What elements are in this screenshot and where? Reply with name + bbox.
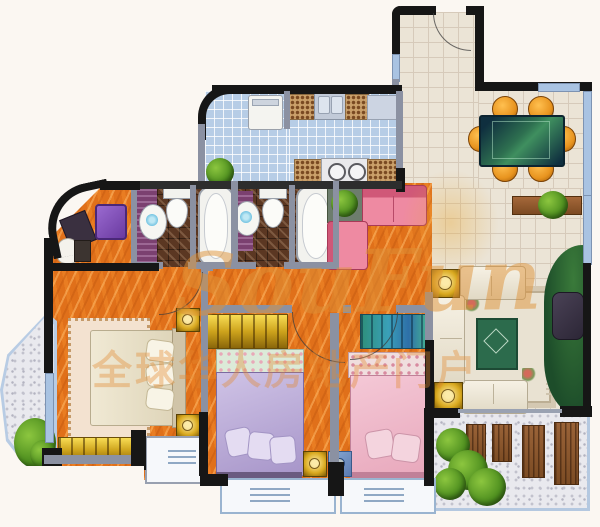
wall-entry-left: [392, 6, 400, 56]
bath2-bathtub-basin: [302, 193, 330, 259]
wall-master-right: [201, 267, 208, 415]
master-pillow-1: [145, 338, 176, 364]
rug-flower-top: [466, 298, 480, 312]
bath1-bathtub: [198, 186, 234, 266]
kitchen-counter-mosaic-a: [289, 94, 317, 120]
sofa-bottom-seatline: [493, 384, 494, 404]
dining-table-glass: [492, 121, 550, 159]
balcony-fern-3: [468, 468, 506, 506]
wall-entry-right: [475, 6, 484, 90]
bath2-sink-bowl: [240, 211, 252, 223]
wall-master-left: [44, 238, 53, 373]
sofa-left-seatline: [440, 338, 462, 339]
wall-master-bay-stub: [131, 430, 146, 470]
wall-laundry-left: [198, 124, 205, 185]
window-dining-right: [583, 91, 592, 197]
wall-bed3-right: [425, 292, 433, 342]
master-window-vent: [168, 448, 196, 464]
wall-bath-divider-1: [190, 185, 196, 265]
balcony-lounger-2: [492, 424, 512, 462]
balcony-door-track: [458, 409, 562, 413]
side-table-top-ring: [438, 276, 452, 290]
kitchen-counter-mosaic-b: [345, 94, 369, 120]
bath1-bathtub-basin: [204, 193, 228, 259]
wall-bath-divider-2: [231, 181, 238, 267]
kitchen-counter-right: [367, 95, 398, 120]
balcony-lounger-4: [554, 422, 579, 485]
bath1-sink-bowl: [146, 214, 158, 226]
stove-burner-right: [348, 163, 366, 181]
pink-sofa-horizontal-cushion: [393, 196, 394, 222]
bedroom2-pillow-3: [269, 435, 297, 465]
side-table-bottom-ring: [441, 389, 455, 403]
master-pillow-3: [145, 386, 175, 411]
bedroom2-nightstand-ring: [309, 458, 320, 469]
sofa-left: [431, 295, 465, 385]
wall-bed3-right-low: [425, 340, 434, 414]
window-entry-left: [392, 54, 400, 82]
window-dining-top: [538, 83, 580, 92]
balcony-fern-4: [434, 468, 466, 500]
sofa-top-seatline: [491, 276, 492, 296]
wall-bath-bottom-3: [284, 262, 339, 269]
master-nightstand-top-ring: [182, 314, 193, 325]
tv-unit: [552, 292, 584, 340]
wall-bath-left: [131, 181, 137, 269]
bedroom3-window-vent: [364, 486, 404, 502]
bedroom3-bed-mattress: [350, 375, 430, 476]
master-nightstand-bottom-ring: [182, 420, 193, 431]
window-master-left: [45, 373, 54, 443]
console-plant: [538, 191, 568, 219]
pink-sofa-horizontal: [362, 185, 427, 226]
washing-machine-lid: [252, 99, 279, 106]
exterior-patch: [0, 466, 144, 527]
wall-balcony-right-top: [560, 406, 592, 417]
bedroom2-window-vent: [250, 486, 290, 502]
wall-bedrooms-top-1: [208, 305, 292, 313]
bedroom2-wardrobe: [204, 314, 288, 349]
sofa-top: [460, 266, 526, 300]
wall-balcony-left: [424, 408, 434, 486]
wall-bed2-bed3-divider-low: [328, 462, 344, 496]
wall-laundry-kitchen-divider: [284, 91, 290, 129]
wall-living-right: [583, 263, 591, 415]
window-living-right: [583, 195, 592, 265]
kitchen-sink-basin-left: [318, 96, 330, 114]
stove-burner-left: [328, 163, 346, 181]
kitchen-sink-basin-right: [331, 96, 343, 114]
balcony-lounger-3: [522, 425, 545, 478]
floor-plan-canvas: SouFun 全球华人房地产门户: [0, 0, 600, 527]
wall-bath-top: [135, 181, 402, 189]
wall-bath-bottom-2: [188, 262, 256, 269]
wall-bath-divider-3: [289, 185, 295, 265]
wall-bath-right: [333, 181, 339, 269]
wall-master-right-low: [199, 412, 208, 476]
wall-master-right-foot: [200, 474, 228, 486]
wall-master-top: [44, 263, 159, 271]
master-pillow-2: [145, 363, 175, 388]
bedroom3-pillow-2: [390, 432, 422, 464]
